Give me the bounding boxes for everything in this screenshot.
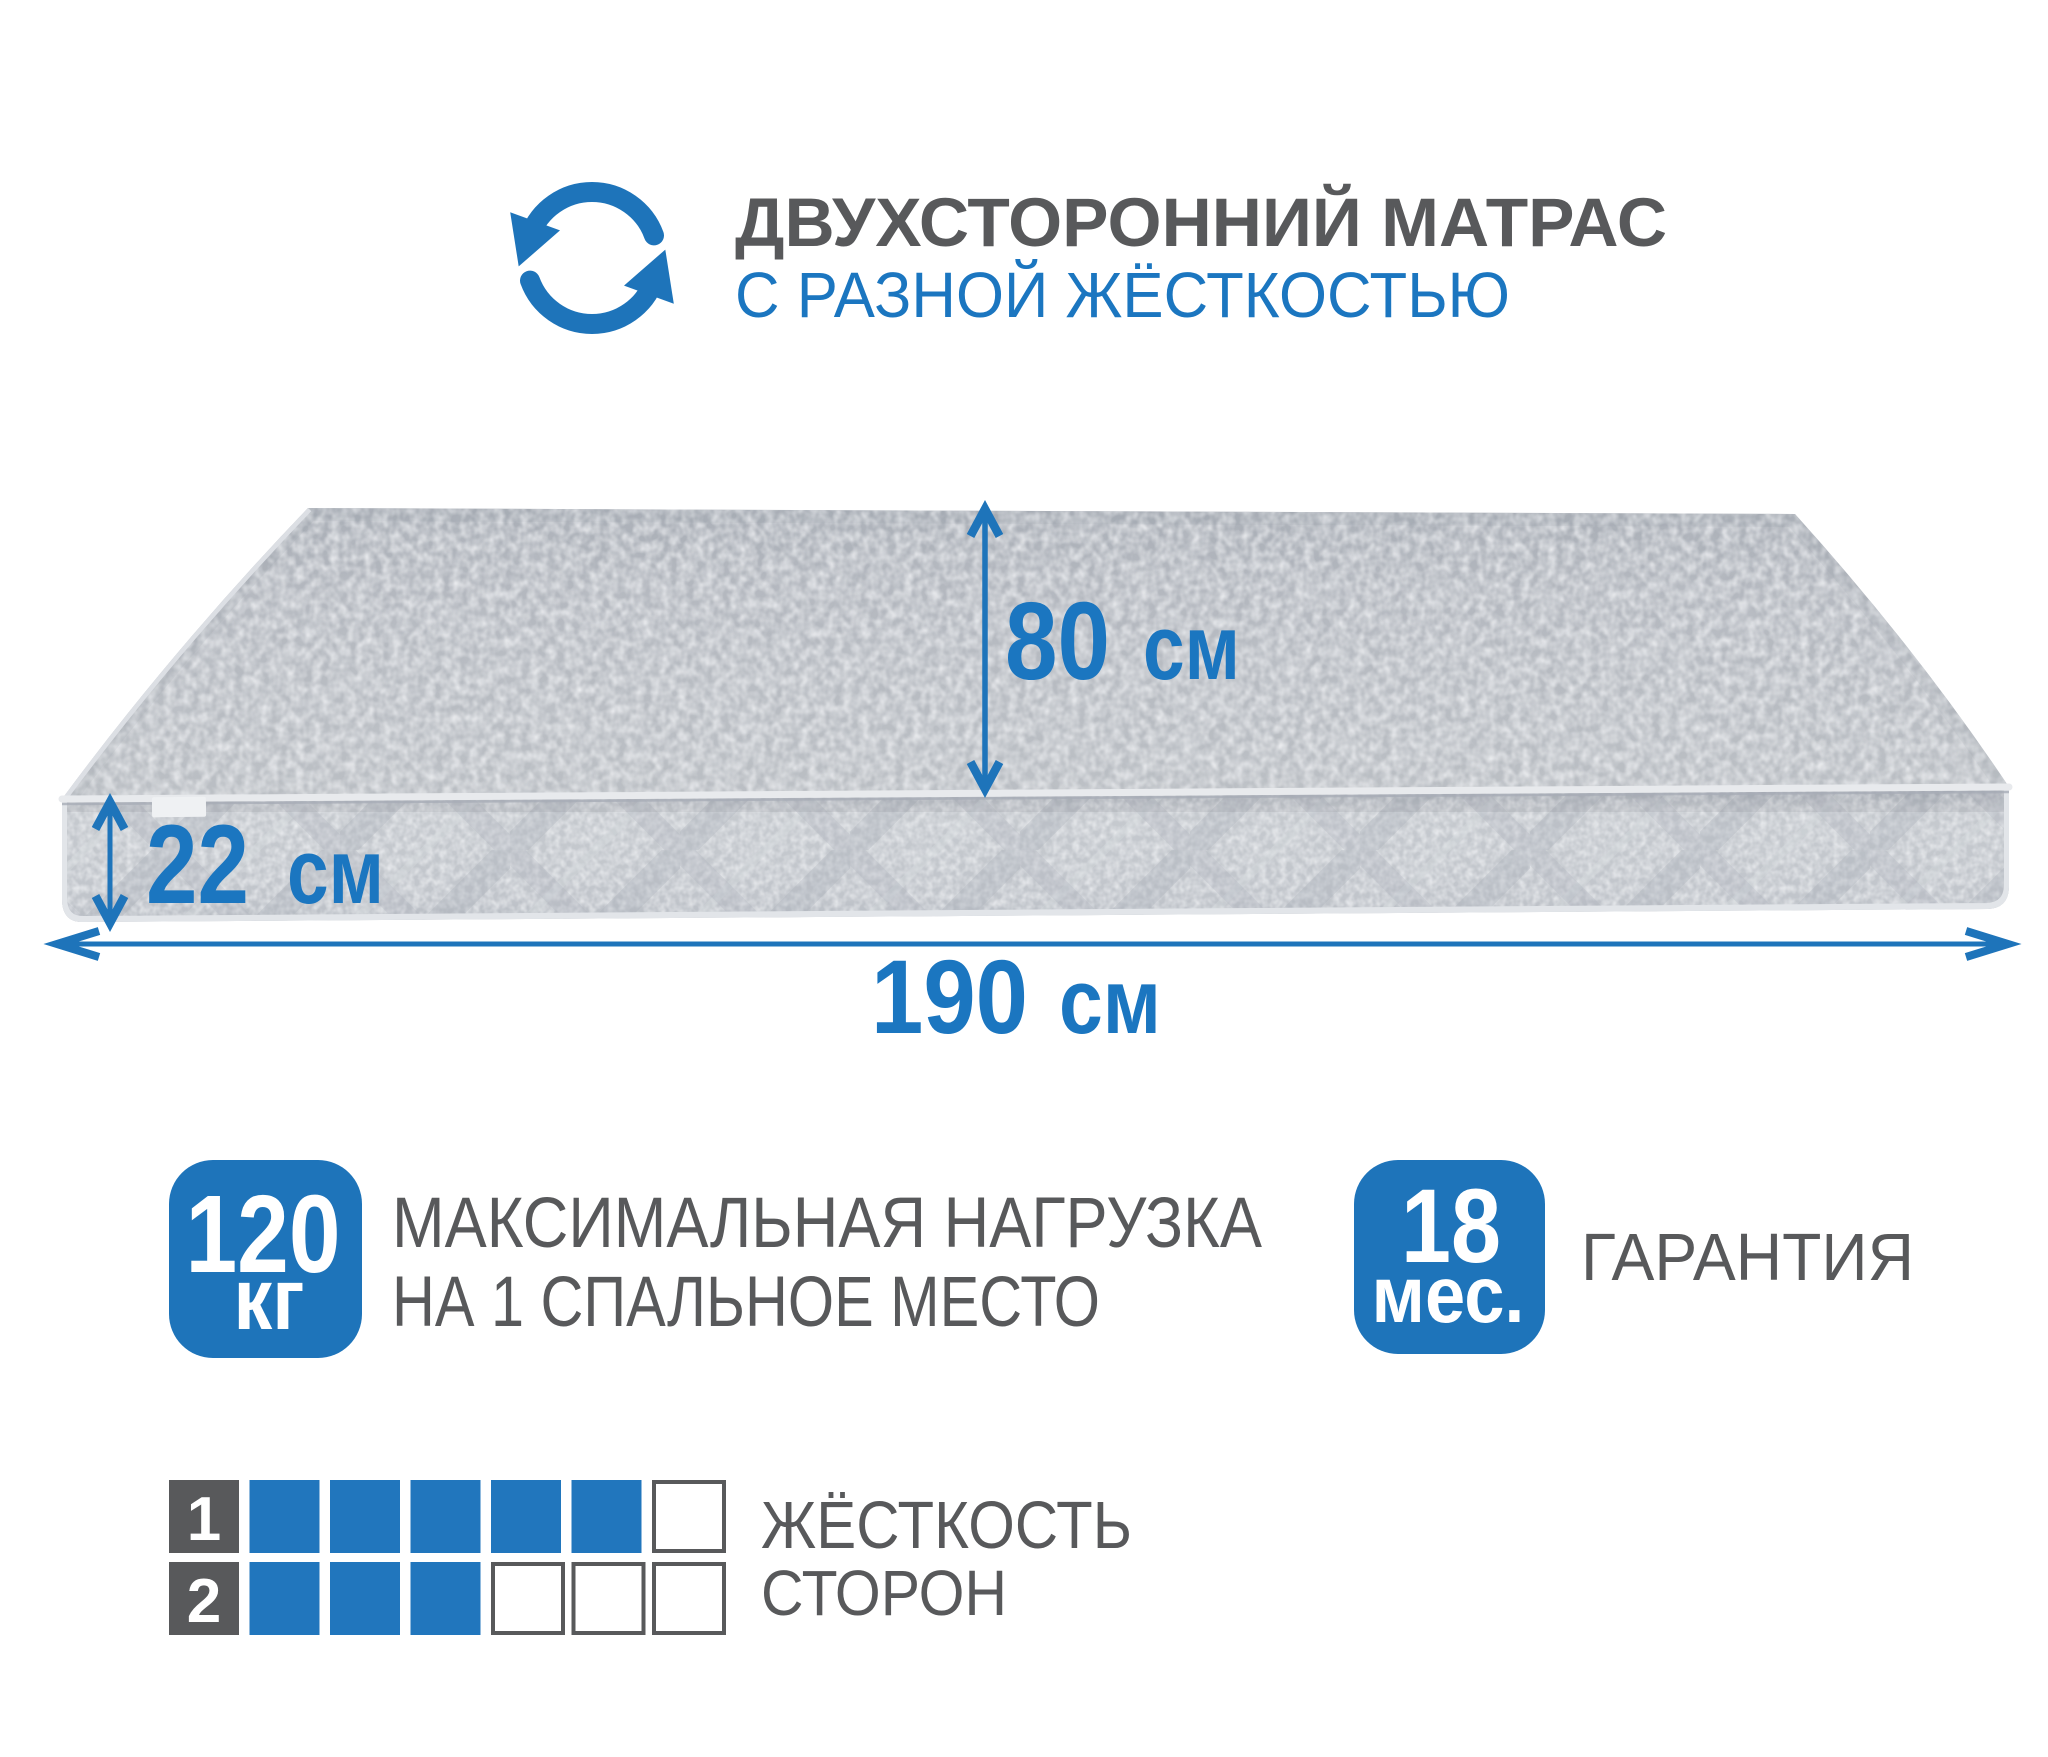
svg-text:ДВУХСТОРОННИЙ МАТРАС: ДВУХСТОРОННИЙ МАТРАС	[735, 183, 1667, 261]
svg-text:ЖЁСТКОСТЬ: ЖЁСТКОСТЬ	[761, 1488, 1132, 1563]
svg-text:190: 190	[871, 939, 1028, 1056]
svg-text:2: 2	[187, 1567, 221, 1636]
svg-text:СТОРОН: СТОРОН	[761, 1557, 1007, 1629]
svg-text:22: 22	[146, 802, 249, 927]
svg-text:НА 1 СПАЛЬНОЕ МЕСТО: НА 1 СПАЛЬНОЕ МЕСТО	[392, 1263, 1100, 1342]
svg-text:см: см	[1143, 597, 1240, 699]
svg-text:80: 80	[1005, 580, 1110, 703]
svg-text:ГАРАНТИЯ: ГАРАНТИЯ	[1581, 1220, 1914, 1295]
svg-text:мес.: мес.	[1372, 1250, 1525, 1339]
svg-text:см: см	[287, 821, 384, 923]
svg-text:С РАЗНОЙ ЖЁСТКОСТЬЮ: С РАЗНОЙ ЖЁСТКОСТЬЮ	[735, 258, 1510, 331]
svg-text:МАКСИМАЛЬНАЯ НАГРУЗКА: МАКСИМАЛЬНАЯ НАГРУЗКА	[392, 1184, 1263, 1263]
svg-text:1: 1	[187, 1485, 221, 1554]
svg-text:кг: кг	[234, 1251, 305, 1348]
svg-text:см: см	[1059, 951, 1161, 1053]
